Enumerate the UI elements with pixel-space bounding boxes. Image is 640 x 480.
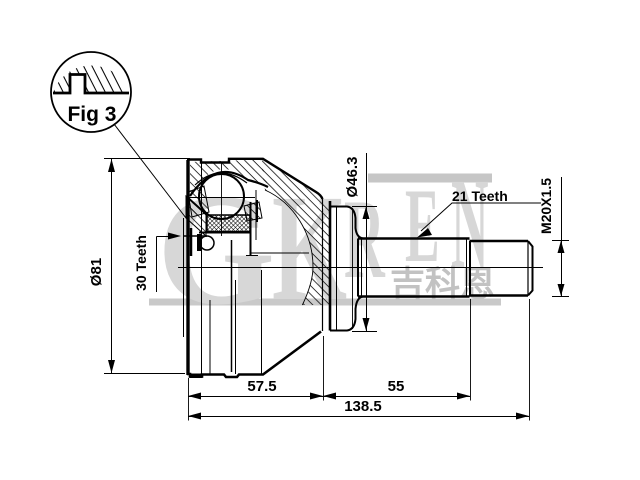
svg-text:G: G: [157, 160, 275, 337]
svg-text:138.5: 138.5: [344, 398, 382, 415]
svg-text:M20X1.5: M20X1.5: [538, 178, 554, 234]
svg-text:Fig 3: Fig 3: [67, 103, 116, 126]
svg-text:Ø81: Ø81: [88, 258, 105, 286]
svg-text:Ø46.3: Ø46.3: [344, 157, 361, 198]
svg-text:57.5: 57.5: [247, 378, 276, 395]
svg-text:21 Teeth: 21 Teeth: [452, 188, 508, 204]
svg-text:吉科恩: 吉科恩: [390, 265, 495, 304]
svg-text:55: 55: [388, 378, 405, 395]
svg-text:30 Teeth: 30 Teeth: [133, 235, 149, 291]
